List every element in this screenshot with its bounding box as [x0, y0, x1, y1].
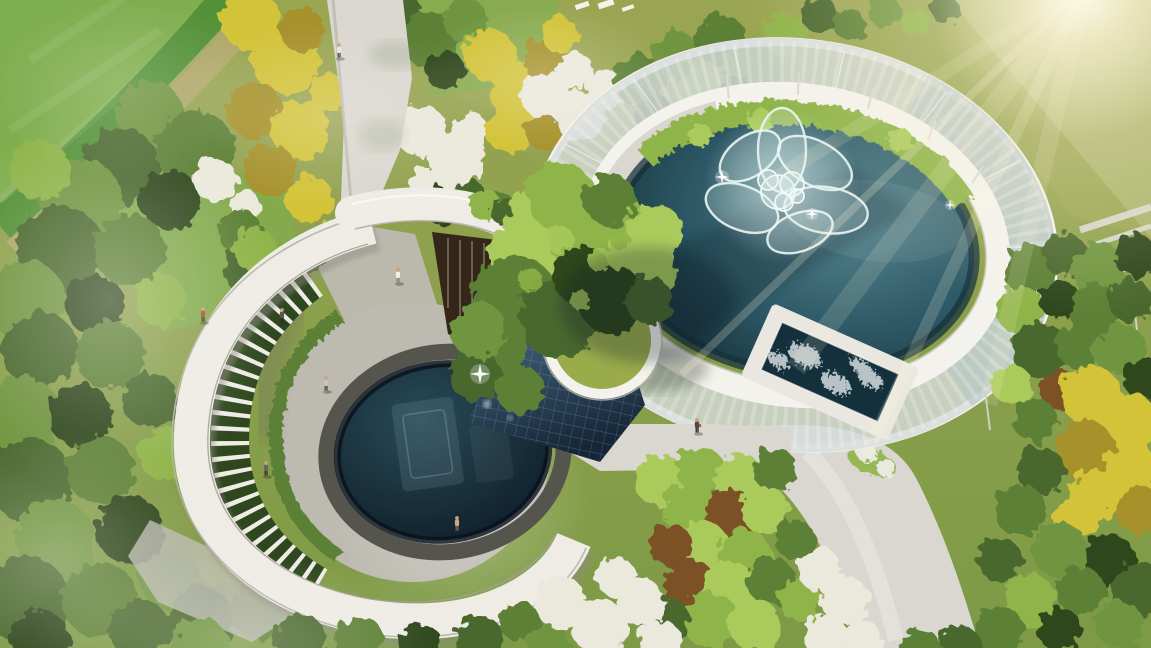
- sparkle-glint: [470, 364, 490, 384]
- rendering-stage: Aerial rendering: figure-eight garden wi…: [0, 0, 1151, 648]
- rendering-canvas: Aerial rendering: figure-eight garden wi…: [0, 0, 1151, 648]
- sparkle-glint: [715, 170, 729, 184]
- sparkle-glint: [806, 208, 818, 220]
